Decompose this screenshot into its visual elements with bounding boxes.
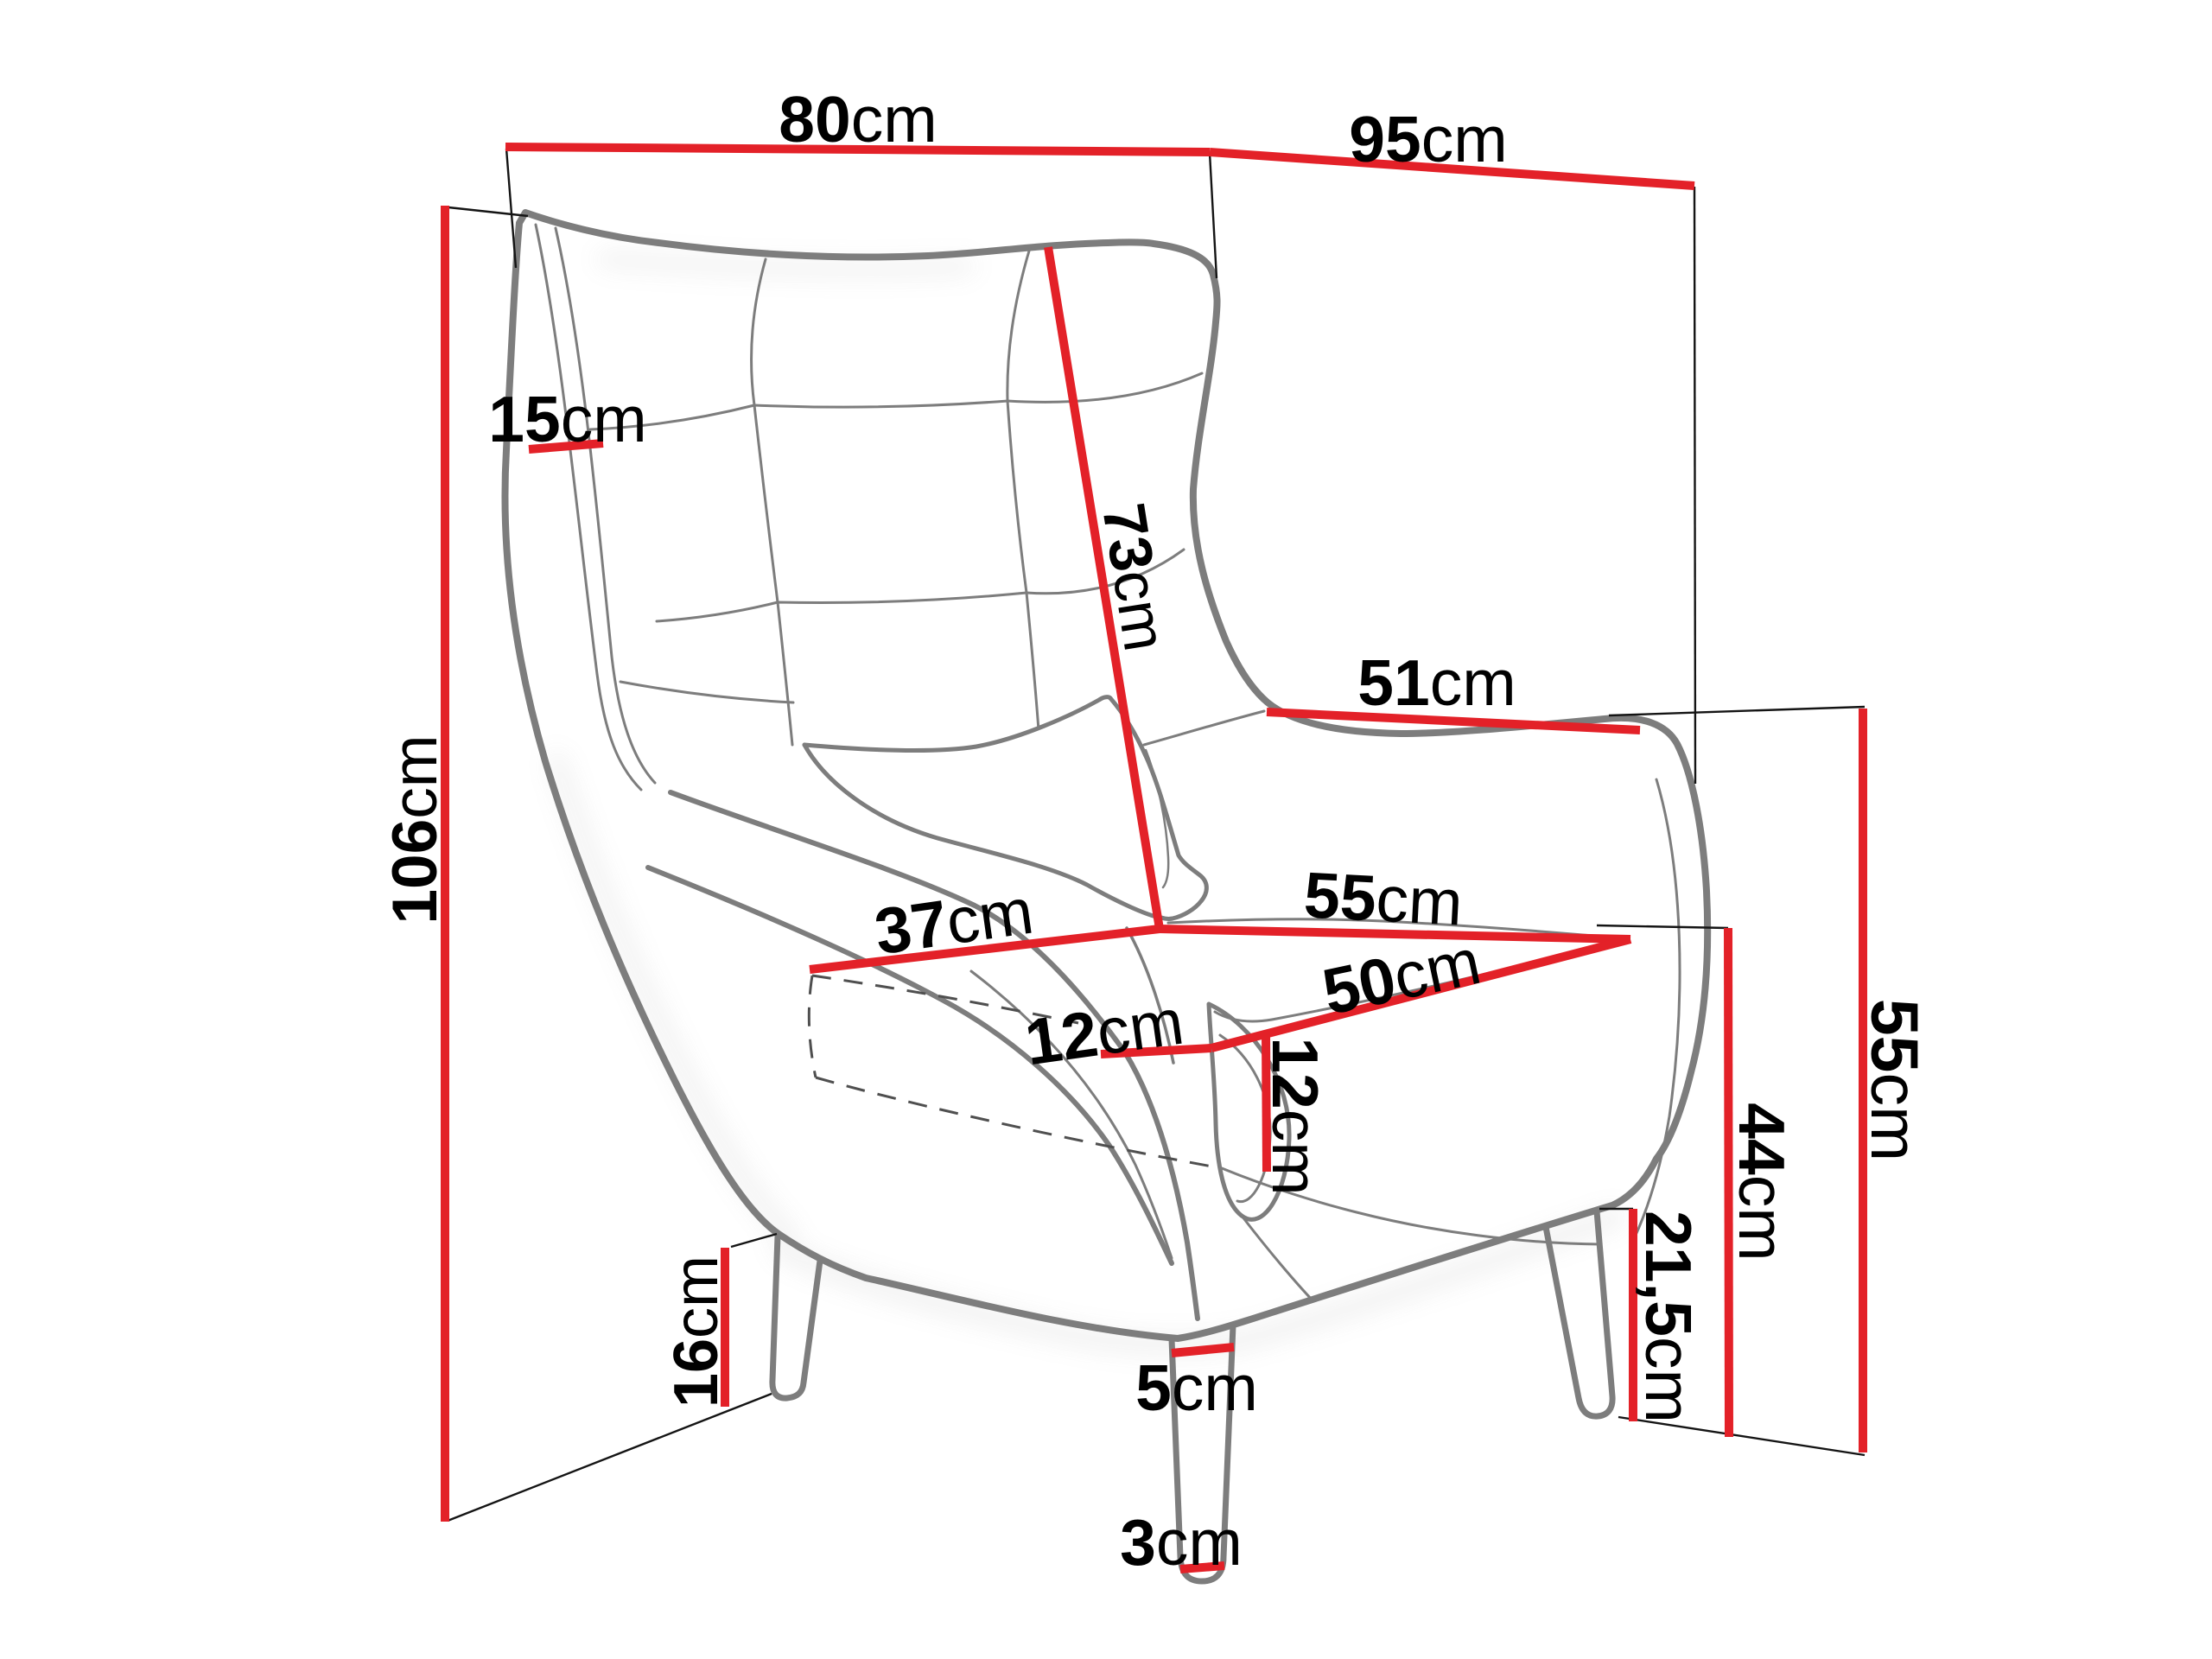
svg-text:106cm: 106cm xyxy=(380,734,450,924)
svg-text:55cm: 55cm xyxy=(1302,858,1465,938)
svg-text:12cm: 12cm xyxy=(1259,1037,1332,1195)
svg-text:15cm: 15cm xyxy=(488,383,646,455)
svg-text:44cm: 44cm xyxy=(1726,1103,1798,1261)
svg-text:55cm: 55cm xyxy=(1857,999,1931,1161)
svg-text:51cm: 51cm xyxy=(1357,646,1516,719)
svg-text:80cm: 80cm xyxy=(779,83,937,156)
svg-text:21,5cm: 21,5cm xyxy=(1632,1211,1705,1423)
svg-text:5cm: 5cm xyxy=(1135,1351,1258,1424)
svg-text:3cm: 3cm xyxy=(1120,1506,1243,1579)
svg-text:95cm: 95cm xyxy=(1349,103,1507,175)
svg-text:16cm: 16cm xyxy=(662,1255,731,1408)
